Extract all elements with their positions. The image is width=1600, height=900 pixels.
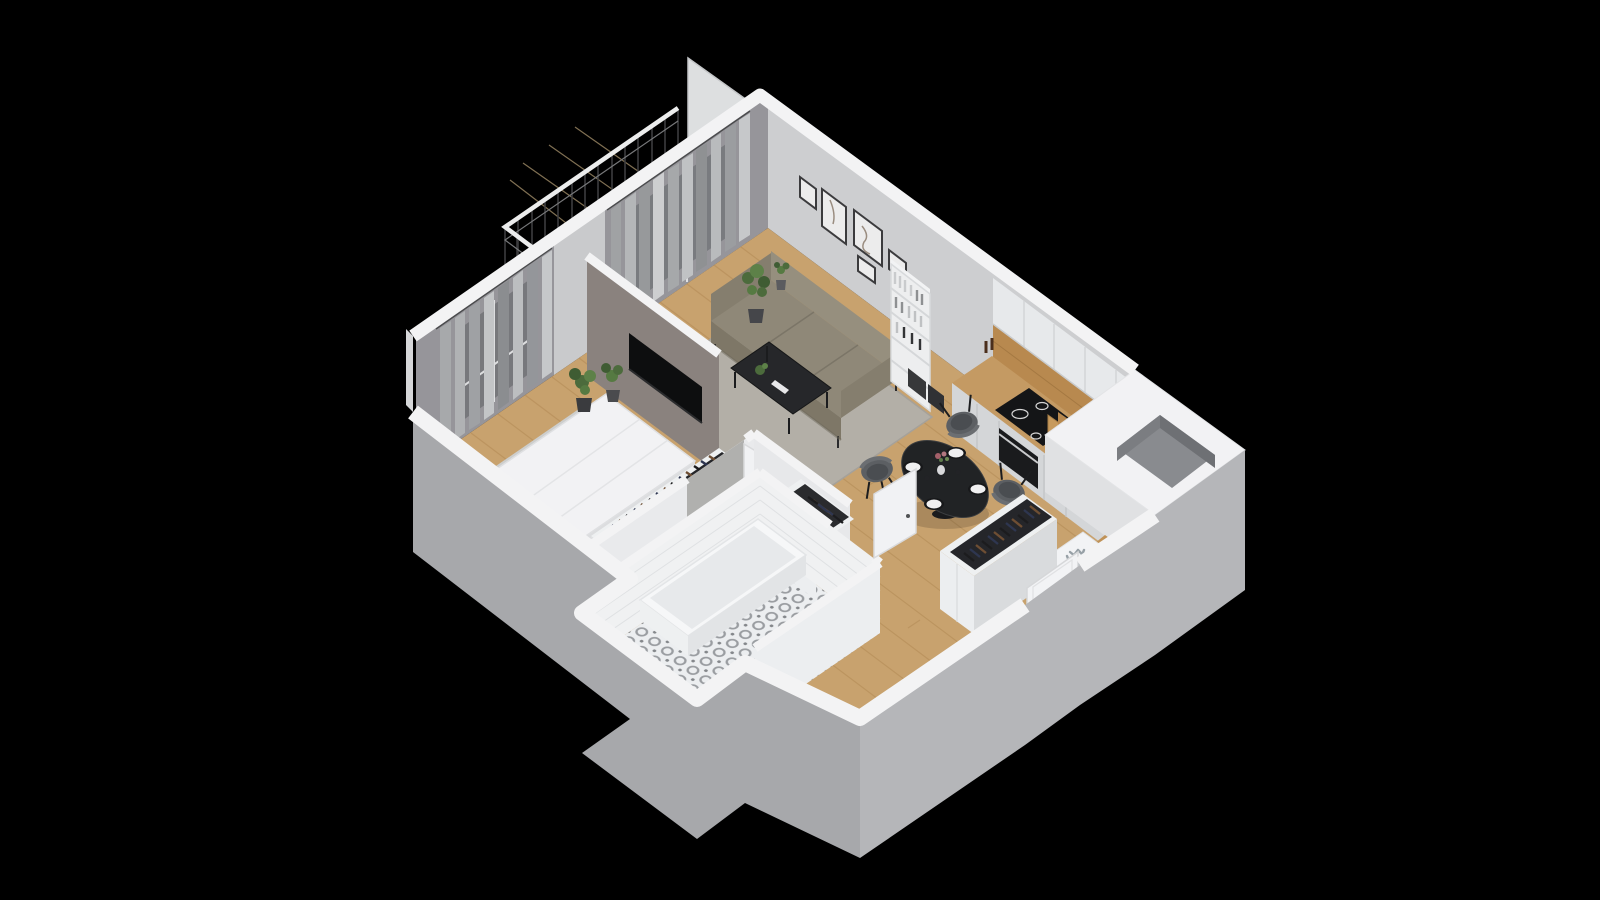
west-wall-step bbox=[406, 329, 413, 412]
floor-plan-stage bbox=[0, 0, 1600, 900]
